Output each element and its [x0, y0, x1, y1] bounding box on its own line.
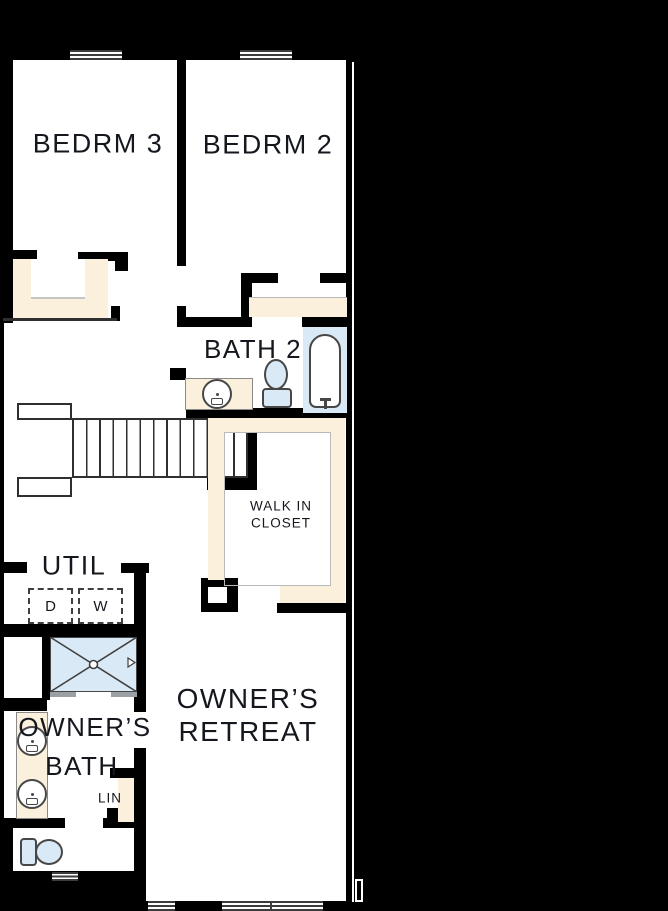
door-jamb-niche [208, 587, 227, 603]
sink-icon [17, 779, 47, 809]
room-label-util: UTIL [42, 553, 107, 580]
wall [3, 50, 13, 323]
closet-shelf [330, 418, 345, 603]
wall [346, 50, 356, 911]
closet-door-track [3, 318, 117, 321]
wall-face-line [352, 62, 354, 902]
wall [3, 50, 356, 60]
window [148, 901, 175, 911]
window [70, 50, 122, 60]
floor-plan: D W BEDRM 3 BEDRM 2 BATH 2 WALK IN CLOSE… [0, 0, 668, 911]
wall [3, 624, 146, 637]
wall [115, 261, 128, 271]
window [222, 901, 323, 911]
exterior-step [355, 879, 363, 902]
shower-icon [50, 637, 137, 692]
room-label-linen: LIN [98, 791, 122, 805]
sink-drain [211, 398, 223, 405]
bathtub-icon [309, 334, 341, 408]
wall [134, 748, 146, 770]
washer-box: W [78, 588, 123, 624]
room-label-walkin-line1: WALK IN [250, 499, 312, 513]
wall [177, 60, 186, 266]
closet-shelf [249, 297, 347, 317]
window-mullion [270, 903, 272, 909]
wall [3, 562, 27, 573]
window [52, 872, 78, 881]
sink-dot [216, 393, 219, 396]
wall [177, 317, 252, 327]
wall [134, 770, 146, 902]
wall [302, 317, 347, 327]
sink-drain [26, 798, 38, 805]
dryer-label: D [45, 598, 56, 615]
window [240, 50, 292, 60]
sink-drain [26, 745, 38, 752]
wall [3, 698, 47, 711]
wall [277, 603, 347, 613]
shelf-line [31, 297, 85, 299]
stair-landing-lower [17, 477, 72, 497]
room-label-owners-bath-line1: OWNER’S [18, 714, 151, 740]
room-label-bedrm2: BEDRM 2 [203, 132, 334, 159]
closet-shelf [280, 585, 345, 603]
closet-shelf [208, 418, 225, 580]
sink-icon [202, 379, 232, 409]
wall [12, 818, 65, 828]
room-label-owners-retreat-line2: RETREAT [178, 718, 317, 746]
room-label-owners-retreat-line1: OWNER’S [177, 685, 320, 713]
sink-dot [31, 793, 34, 796]
dryer-box: D [28, 588, 73, 624]
room-label-bedrm3: BEDRM 3 [33, 131, 164, 158]
wall [170, 368, 186, 380]
closet-interior [31, 259, 85, 299]
washer-label: W [93, 598, 107, 615]
stair-landing-upper [17, 403, 72, 420]
shower-curb [50, 692, 76, 697]
shower-curb [111, 692, 137, 697]
wall [241, 273, 278, 283]
closet-shelf [208, 418, 345, 433]
room-label-walkin-line2: CLOSET [251, 516, 311, 530]
room-label-owners-bath-line2: BATH [45, 753, 118, 779]
wall [320, 273, 347, 283]
room-label-bath2: BATH 2 [204, 336, 302, 362]
tub-faucet-stem [324, 401, 327, 409]
